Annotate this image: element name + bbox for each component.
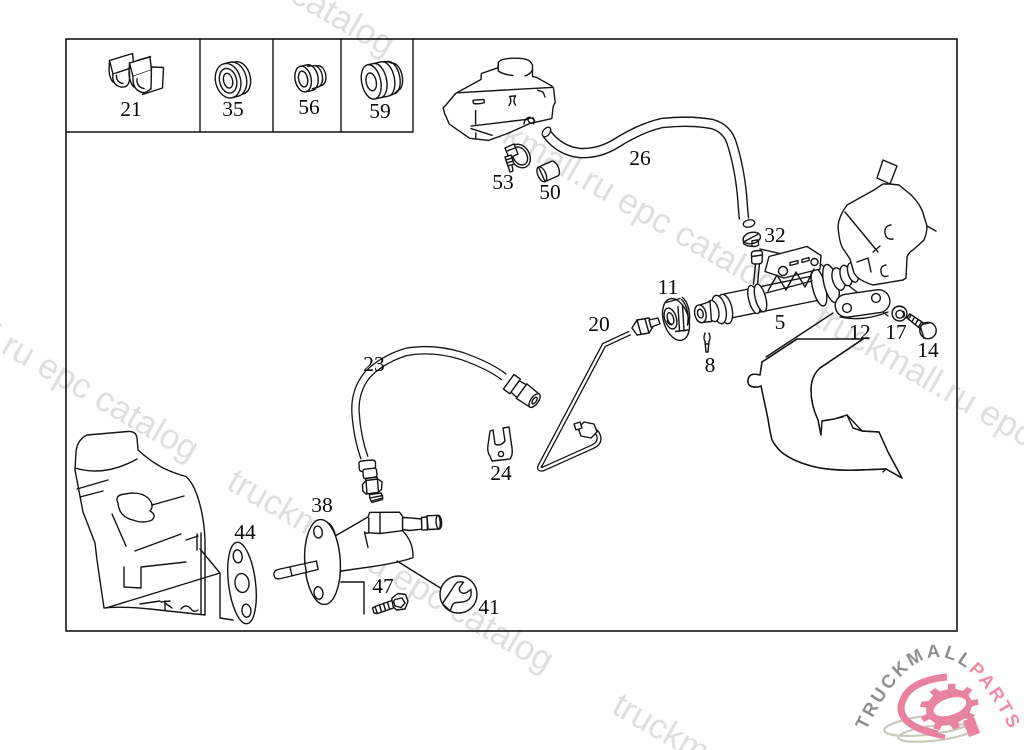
svg-text:23: 23 bbox=[363, 352, 385, 376]
svg-text:50: 50 bbox=[539, 180, 561, 204]
svg-text:47: 47 bbox=[372, 574, 394, 598]
svg-text:53: 53 bbox=[492, 170, 514, 194]
svg-text:11: 11 bbox=[658, 275, 679, 299]
svg-text:26: 26 bbox=[629, 146, 651, 170]
svg-text:35: 35 bbox=[222, 97, 244, 121]
svg-text:24: 24 bbox=[490, 461, 512, 485]
svg-text:12: 12 bbox=[849, 320, 871, 344]
svg-text:17: 17 bbox=[885, 320, 907, 344]
svg-text:56: 56 bbox=[298, 95, 320, 119]
svg-text:20: 20 bbox=[588, 312, 610, 336]
svg-text:41: 41 bbox=[478, 595, 500, 619]
svg-text:8: 8 bbox=[705, 353, 716, 377]
svg-text:38: 38 bbox=[311, 493, 333, 517]
svg-text:59: 59 bbox=[369, 99, 391, 123]
svg-text:21: 21 bbox=[120, 97, 142, 121]
svg-text:14: 14 bbox=[917, 338, 939, 362]
svg-text:44: 44 bbox=[234, 520, 256, 544]
svg-text:32: 32 bbox=[764, 223, 786, 247]
svg-text:5: 5 bbox=[775, 310, 786, 334]
